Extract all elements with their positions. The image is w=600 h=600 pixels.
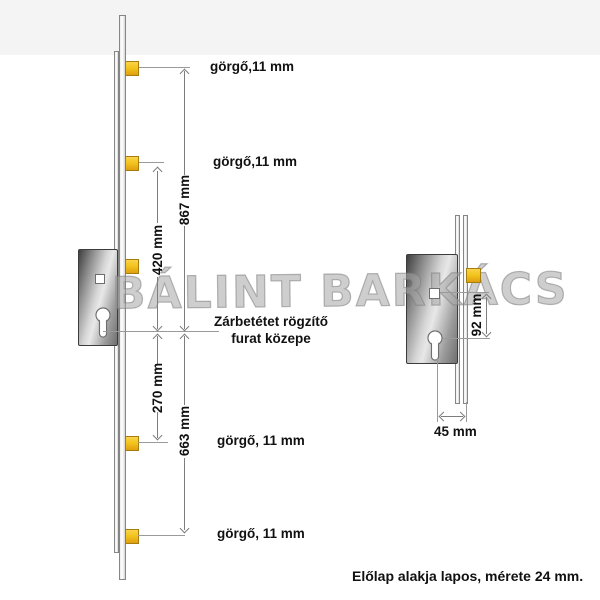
dim-line-663-upper xyxy=(184,336,185,405)
left-keyhole xyxy=(94,307,112,340)
arrowhead-up-icon xyxy=(180,334,190,344)
arrowhead-down-icon xyxy=(180,524,190,534)
arrowhead-down-icon xyxy=(153,431,163,441)
dim-label-420: 420 mm xyxy=(148,220,166,280)
dim-line-663-lower xyxy=(184,458,185,530)
dim-label-92: 92 mm xyxy=(467,285,485,345)
arrowhead-down-icon xyxy=(153,322,163,332)
watermark-band xyxy=(0,0,600,55)
diagram-canvas: BÁLINT BARKÁCS 867 mm 420 mm xyxy=(0,0,600,600)
leader-roller-5 xyxy=(138,535,185,536)
ext-line-keyhole xyxy=(437,358,438,422)
roller-5 xyxy=(125,529,139,544)
cylinder-hole-note: Zárbetétet rögzítő furat közepe xyxy=(213,313,329,347)
arrowhead-down-icon xyxy=(180,322,190,332)
cylinder-hole-note-line1: Zárbetétet rögzítő xyxy=(213,313,329,330)
cylinder-reference-line xyxy=(103,331,219,332)
right-roller xyxy=(466,268,481,283)
roller-label-1: görgő,11 mm xyxy=(210,59,294,74)
roller-label-3: görgő, 11 mm xyxy=(217,433,305,448)
dim-label-867: 867 mm xyxy=(175,170,193,230)
roller-label-2: görgő,11 mm xyxy=(213,154,297,169)
dim-label-663: 663 mm xyxy=(175,401,193,461)
dim-line-867-upper xyxy=(184,71,185,175)
right-keyhole xyxy=(426,330,444,363)
leader-roller-4 xyxy=(138,442,168,443)
arrowhead-up-icon xyxy=(180,69,190,79)
right-handle-follower-hole xyxy=(429,288,440,299)
ext-line-plate xyxy=(466,402,467,422)
footer-note: Előlap alakja lapos, mérete 24 mm. xyxy=(352,568,583,584)
dim-label-270: 270 mm xyxy=(148,358,166,418)
leader-roller-2 xyxy=(139,162,164,163)
watermark-text: BÁLINT BARKÁCS xyxy=(112,264,583,320)
dim-line-867-lower xyxy=(184,226,185,329)
left-handle-follower-hole xyxy=(95,274,105,284)
roller-4 xyxy=(125,436,139,451)
roller-3 xyxy=(125,259,139,274)
arrowhead-up-icon xyxy=(153,167,163,177)
leader-roller-1 xyxy=(139,67,190,68)
roller-2 xyxy=(125,156,139,171)
dim-label-45: 45 mm xyxy=(434,424,477,439)
arrowhead-right-icon xyxy=(456,412,466,422)
cylinder-hole-note-line2: furat közepe xyxy=(213,330,329,347)
arrowhead-up-icon xyxy=(153,334,163,344)
roller-label-4: görgő, 11 mm xyxy=(217,526,305,541)
roller-1 xyxy=(125,61,139,76)
dim-line-420-upper xyxy=(157,171,158,223)
arrowhead-left-icon xyxy=(439,412,449,422)
